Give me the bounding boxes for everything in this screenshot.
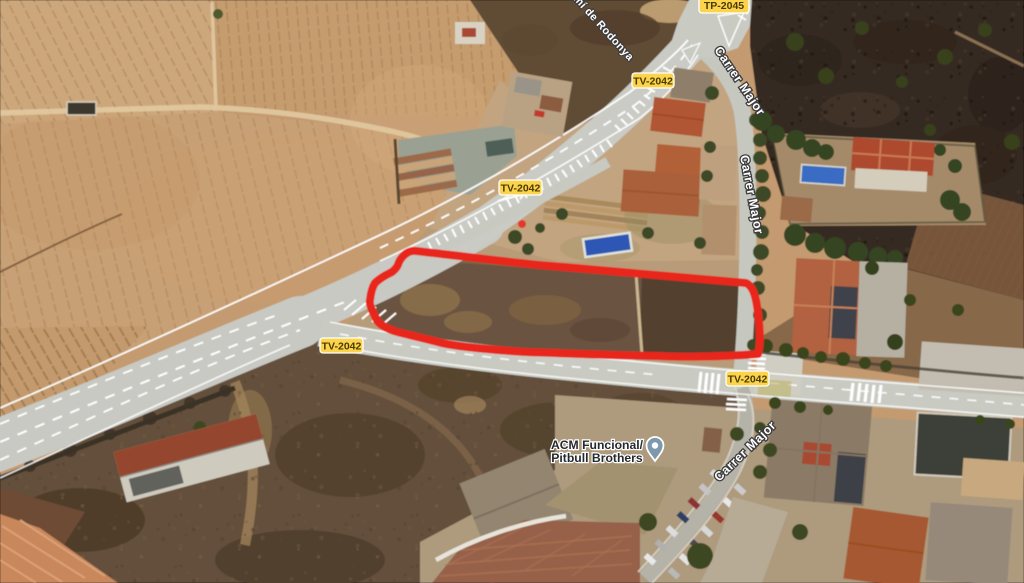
svg-text:TV-2042: TV-2042 (633, 76, 673, 88)
svg-text:TP-2045: TP-2045 (704, 0, 744, 12)
svg-text:Pitbull Brothers: Pitbull Brothers (551, 451, 643, 465)
svg-text:TV-2042: TV-2042 (728, 374, 768, 386)
svg-text:TV-2042: TV-2042 (501, 183, 541, 195)
svg-text:ACM Funcional/: ACM Funcional/ (551, 438, 644, 452)
svg-text:TV-2042: TV-2042 (322, 341, 362, 353)
